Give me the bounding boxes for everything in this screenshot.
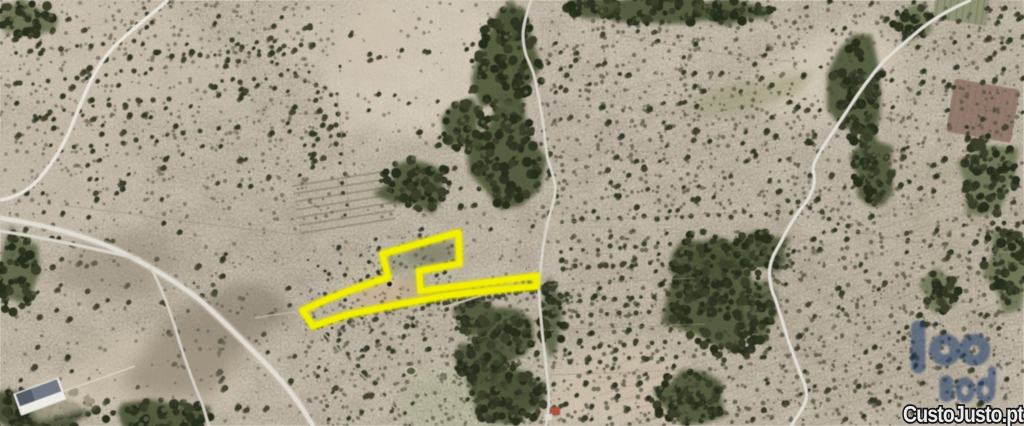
svg-text:CustoJusto.pt: CustoJusto.pt <box>903 401 1024 426</box>
